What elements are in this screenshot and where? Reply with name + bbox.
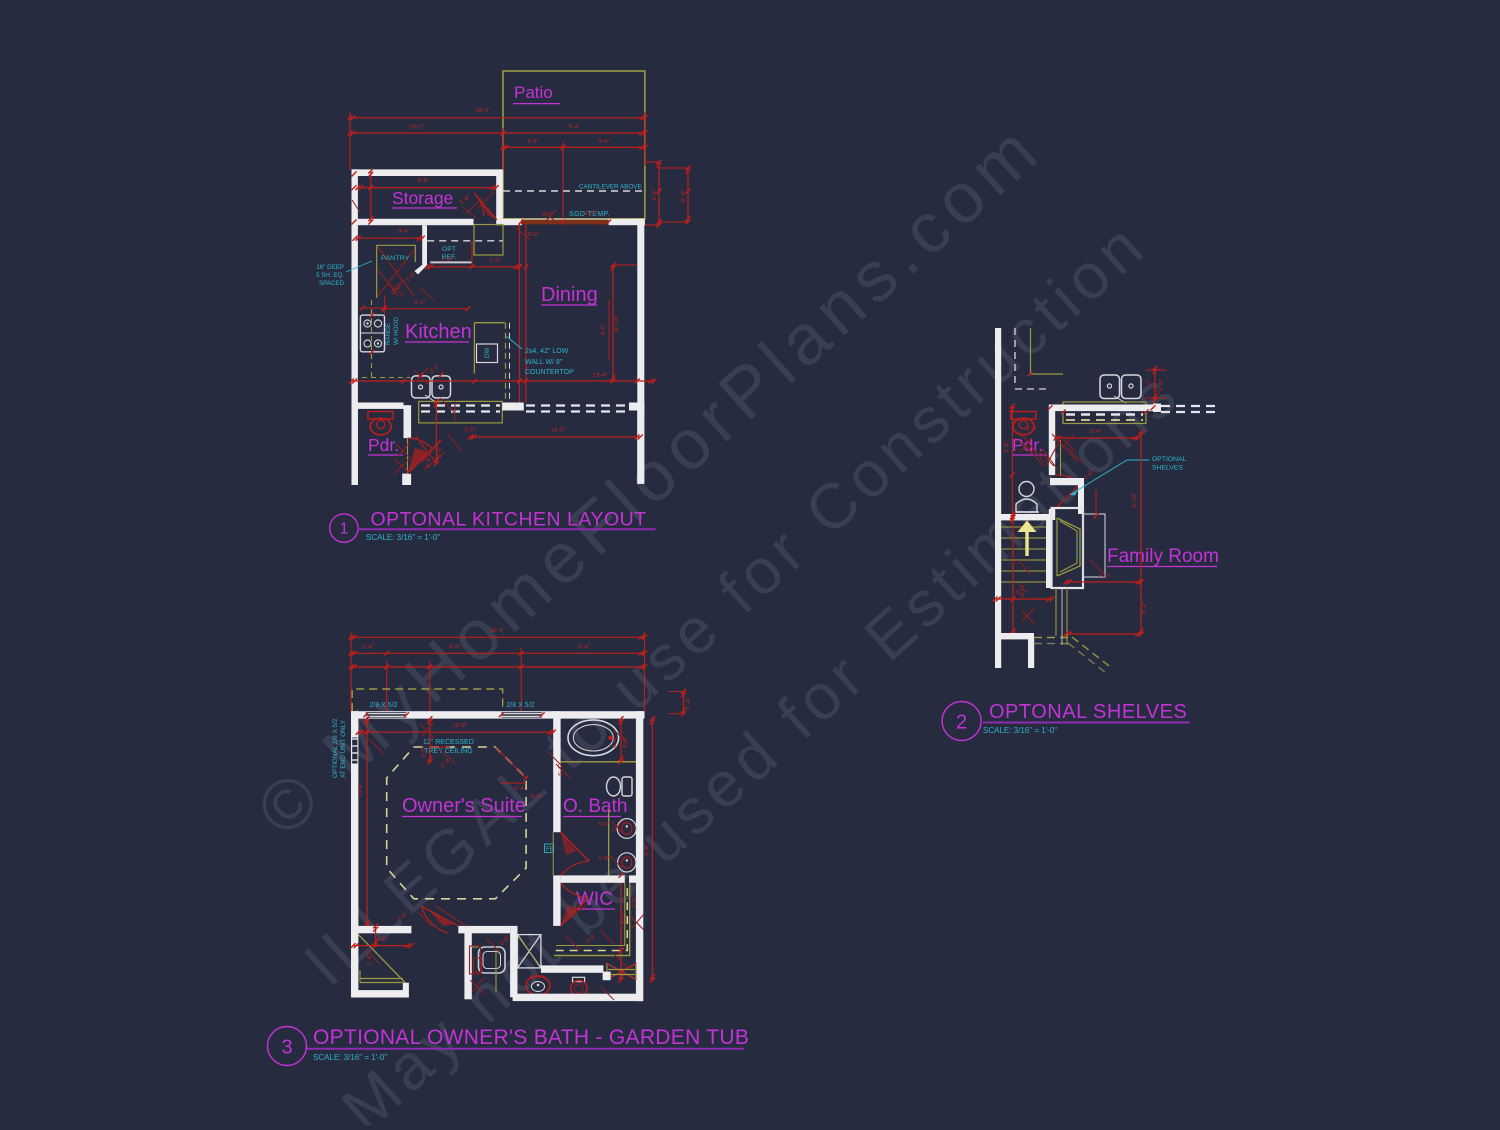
svg-text:3'-0": 3'-0" <box>464 428 476 434</box>
svg-text:16" DEEP: 16" DEEP <box>316 264 344 271</box>
svg-text:9'-4": 9'-4" <box>568 125 580 131</box>
svg-text:3: 3 <box>281 1037 292 1059</box>
svg-text:OPTIONAL OWNER'S BATH - GARDEN: OPTIONAL OWNER'S BATH - GARDEN TUB <box>313 1026 749 1049</box>
svg-text:3'-4": 3'-4" <box>1142 602 1148 614</box>
svg-text:8'-4": 8'-4" <box>578 645 590 651</box>
svg-text:2'-4": 2'-4" <box>362 645 374 651</box>
svg-text:AT END UNIT ONLY: AT END UNIT ONLY <box>340 719 347 778</box>
svg-text:2'-0": 2'-0" <box>1098 574 1110 580</box>
svg-text:5'-4": 5'-4" <box>598 139 610 145</box>
svg-text:OPT: OPT <box>442 246 456 253</box>
svg-text:5'-4": 5'-4" <box>558 764 564 776</box>
svg-text:16'-4": 16'-4" <box>490 628 505 634</box>
svg-text:10'-2": 10'-2" <box>410 125 425 131</box>
svg-text:COUNTERTOP: COUNTERTOP <box>525 369 574 376</box>
svg-text:2'-0": 2'-0" <box>527 232 539 238</box>
svg-text:O. Bath: O. Bath <box>563 796 627 817</box>
svg-text:SCALE: 3/16" = 1'-0": SCALE: 3/16" = 1'-0" <box>983 726 1057 735</box>
svg-text:W/ HOOD: W/ HOOD <box>393 317 400 345</box>
svg-text:2'-6": 2'-6" <box>1004 441 1010 453</box>
svg-text:2: 2 <box>956 712 967 734</box>
svg-text:Kitchen: Kitchen <box>405 321 472 343</box>
svg-text:Storage: Storage <box>392 188 453 208</box>
svg-text:8'-8": 8'-8" <box>644 844 650 856</box>
svg-text:SHELVES: SHELVES <box>1152 465 1183 472</box>
svg-text:3'-0": 3'-0" <box>601 324 607 336</box>
svg-text:9'-4": 9'-4" <box>398 229 410 235</box>
svg-text:Patio: Patio <box>514 83 553 102</box>
svg-text:WALL W/ 8": WALL W/ 8" <box>525 359 563 366</box>
svg-text:SPACED: SPACED <box>319 280 345 287</box>
svg-text:2'-0": 2'-0" <box>632 896 638 908</box>
svg-text:3'-10": 3'-10" <box>1020 583 1026 598</box>
svg-text:2/8 X 5/2: 2/8 X 5/2 <box>506 702 534 709</box>
svg-text:5'-10": 5'-10" <box>1132 493 1138 508</box>
svg-text:WIC: WIC <box>576 889 613 910</box>
svg-text:Owner's Suite: Owner's Suite <box>402 795 526 817</box>
svg-text:1'-4": 1'-4" <box>686 697 692 709</box>
svg-text:1'-9": 1'-9" <box>598 856 610 862</box>
svg-text:12'-8": 12'-8" <box>453 723 468 729</box>
svg-text:5'-2": 5'-2" <box>414 300 426 306</box>
svg-text:2'-4": 2'-4" <box>514 786 526 792</box>
svg-text:SCALE: 3/16" = 1'-0": SCALE: 3/16" = 1'-0" <box>366 533 440 542</box>
svg-text:RANGE: RANGE <box>385 323 392 345</box>
svg-text:2'-0": 2'-0" <box>652 189 658 201</box>
svg-text:CANTILEVER ABOVE: CANTILEVER ABOVE <box>579 184 642 191</box>
svg-text:2'-0": 2'-0" <box>1159 379 1165 391</box>
svg-text:2'-0": 2'-0" <box>489 258 501 264</box>
svg-text:6'-0": 6'-0" <box>449 645 461 651</box>
svg-text:9'-8": 9'-8" <box>417 178 429 184</box>
svg-text:2'-2": 2'-2" <box>426 456 432 468</box>
svg-text:OPTONAL KITCHEN LAYOUT: OPTONAL KITCHEN LAYOUT <box>371 509 647 531</box>
svg-text:5'-4": 5'-4" <box>1090 429 1102 435</box>
svg-text:1: 1 <box>339 521 348 538</box>
svg-text:3'-0": 3'-0" <box>584 211 596 217</box>
svg-text:12" RECESSED: 12" RECESSED <box>423 739 474 746</box>
svg-text:1'-4": 1'-4" <box>367 954 373 966</box>
svg-text:2'-6": 2'-6" <box>1026 426 1038 432</box>
svg-text:Pdr.: Pdr. <box>368 435 399 455</box>
svg-text:5'-0": 5'-0" <box>598 822 610 828</box>
svg-text:5 SH. EQ.: 5 SH. EQ. <box>316 272 344 279</box>
svg-text:6'-0": 6'-0" <box>623 736 629 748</box>
svg-text:DW: DW <box>484 348 491 358</box>
svg-text:11'-10": 11'-10" <box>614 315 620 333</box>
svg-text:2'-0": 2'-0" <box>437 446 443 458</box>
svg-text:6'-2": 6'-2" <box>681 190 687 202</box>
svg-text:2x4, 42" LOW: 2x4, 42" LOW <box>525 348 569 355</box>
svg-text:OPTIONAL: OPTIONAL <box>1152 456 1187 463</box>
svg-text:3'-0": 3'-0" <box>530 794 542 800</box>
svg-text:OPTIONAL 2/8 X 5/2: OPTIONAL 2/8 X 5/2 <box>332 718 339 778</box>
svg-text:16'-6": 16'-6" <box>476 108 491 114</box>
svg-text:6'-0": 6'-0" <box>612 736 618 748</box>
svg-text:Family Room: Family Room <box>1107 546 1219 567</box>
svg-text:SCALE: 3/16" = 1'-0": SCALE: 3/16" = 1'-0" <box>313 1053 387 1062</box>
svg-text:3'-0": 3'-0" <box>421 746 427 758</box>
svg-text:TREY CEILING: TREY CEILING <box>424 748 473 755</box>
svg-text:Pdr.: Pdr. <box>1012 435 1043 455</box>
svg-text:PANTRY: PANTRY <box>381 255 410 262</box>
svg-text:13'-4": 13'-4" <box>593 373 608 379</box>
svg-text:2/8 X 5/2: 2/8 X 5/2 <box>370 702 398 709</box>
svg-text:2'-0": 2'-0" <box>441 258 453 264</box>
svg-text:4'-6": 4'-6" <box>527 139 539 145</box>
svg-text:OPTONAL SHELVES: OPTONAL SHELVES <box>989 701 1187 723</box>
svg-text:14'-0": 14'-0" <box>551 428 566 434</box>
svg-text:13'-8": 13'-8" <box>358 783 364 798</box>
svg-text:Dining: Dining <box>541 284 598 306</box>
